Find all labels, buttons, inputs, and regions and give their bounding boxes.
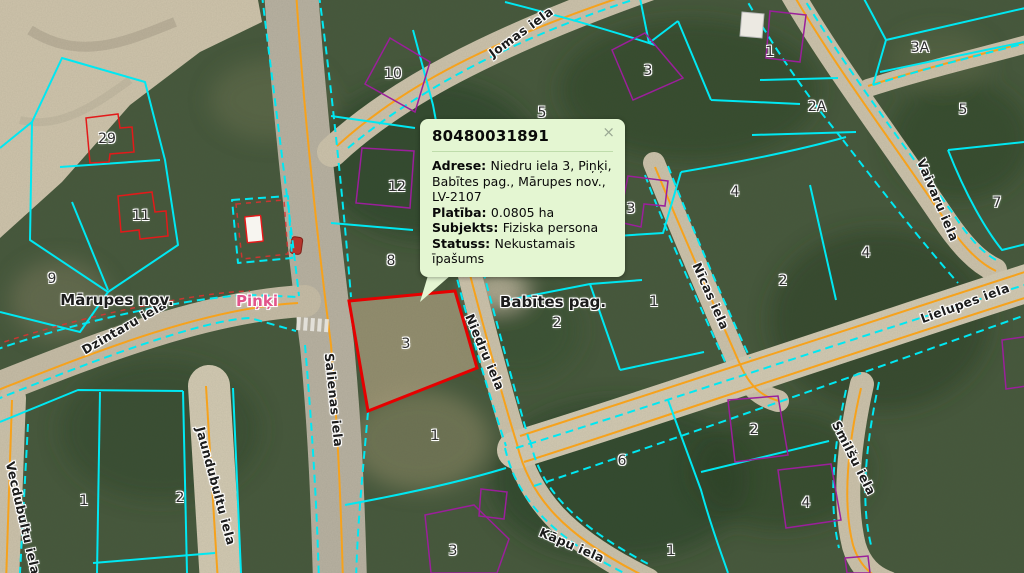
- map-canvas[interactable]: [0, 0, 1024, 573]
- popup-field: Platība: 0.0805 ha: [432, 205, 613, 221]
- cadastral-map[interactable]: 2911910128531313A2A543724216241123 Jomas…: [0, 0, 1024, 573]
- bus-shelter: [245, 215, 264, 243]
- popup-body: Adrese: Niedru iela 3, Piņķi, Babītes pa…: [432, 158, 613, 267]
- close-icon[interactable]: ×: [602, 125, 615, 140]
- popup-field: Adrese: Niedru iela 3, Piņķi, Babītes pa…: [432, 158, 613, 205]
- popup-title: 80480031891: [432, 127, 613, 152]
- popup-field: Subjekts: Fiziska persona: [432, 220, 613, 236]
- popup-field: Statuss: Nekustamais īpašums: [432, 236, 613, 267]
- parcel-info-popup: × 80480031891 Adrese: Niedru iela 3, Piņ…: [420, 119, 625, 277]
